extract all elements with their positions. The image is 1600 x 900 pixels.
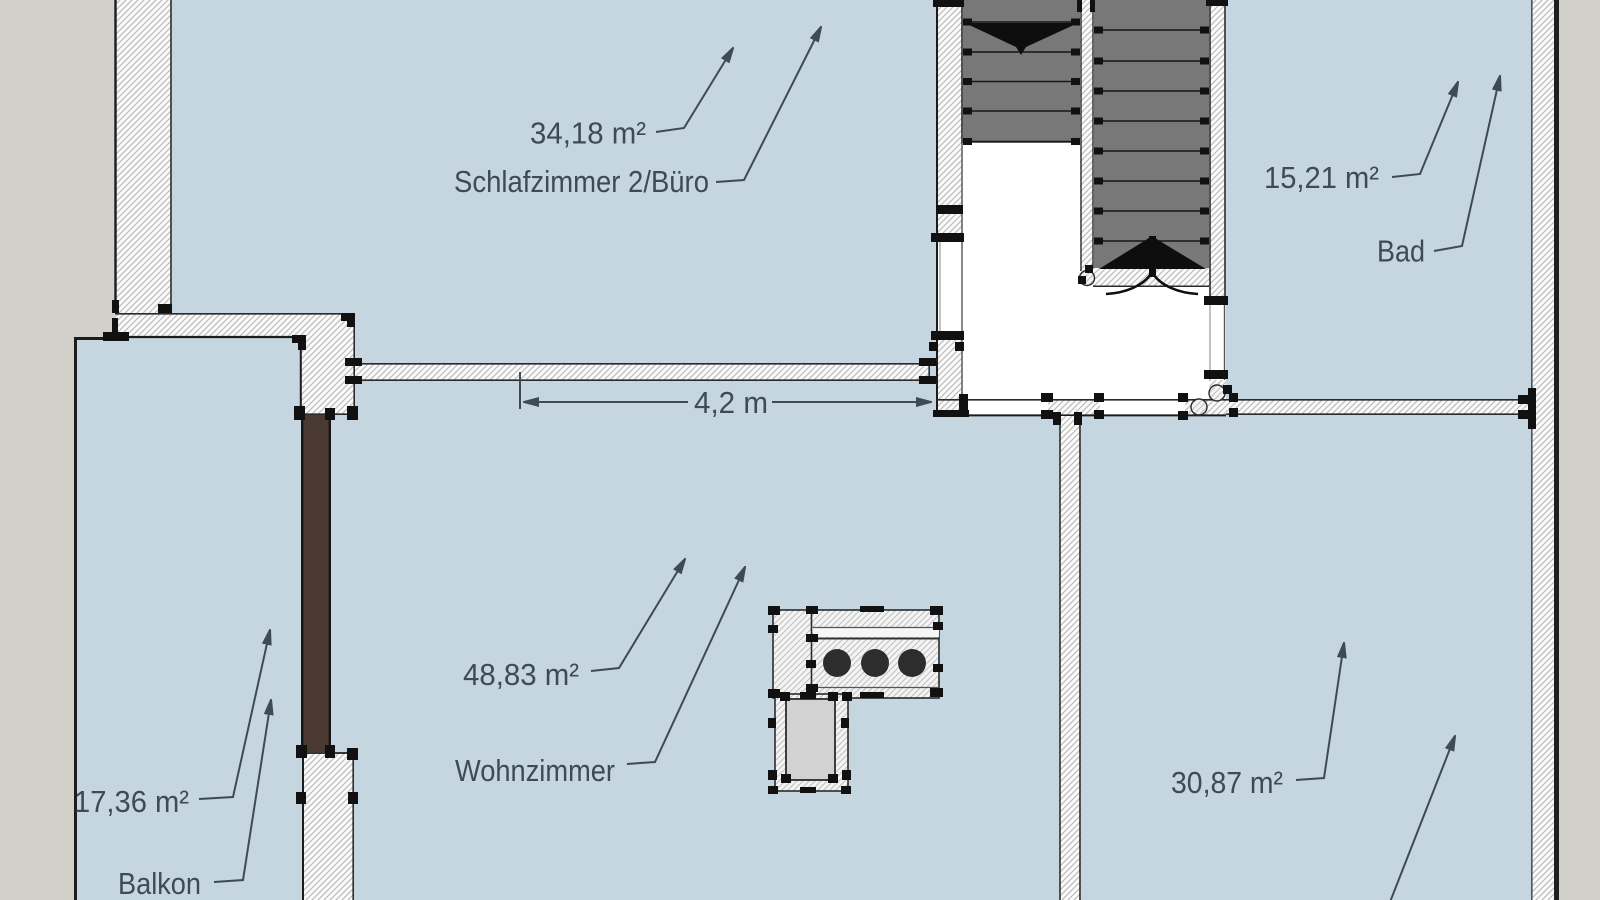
svg-text:4,2 m: 4,2 m	[694, 385, 768, 420]
svg-text:34,18 m²: 34,18 m²	[530, 116, 646, 151]
svg-text:17,36 m²: 17,36 m²	[74, 784, 189, 819]
svg-text:30,87 m²: 30,87 m²	[1171, 765, 1283, 800]
svg-text:Schlafzimmer 2/Büro: Schlafzimmer 2/Büro	[454, 164, 709, 199]
svg-text:Bad: Bad	[1377, 234, 1425, 269]
svg-text:Balkon: Balkon	[118, 866, 201, 900]
svg-text:15,21 m²: 15,21 m²	[1264, 160, 1379, 195]
svg-text:Wohnzimmer: Wohnzimmer	[455, 753, 615, 788]
svg-text:48,83 m²: 48,83 m²	[463, 657, 579, 692]
